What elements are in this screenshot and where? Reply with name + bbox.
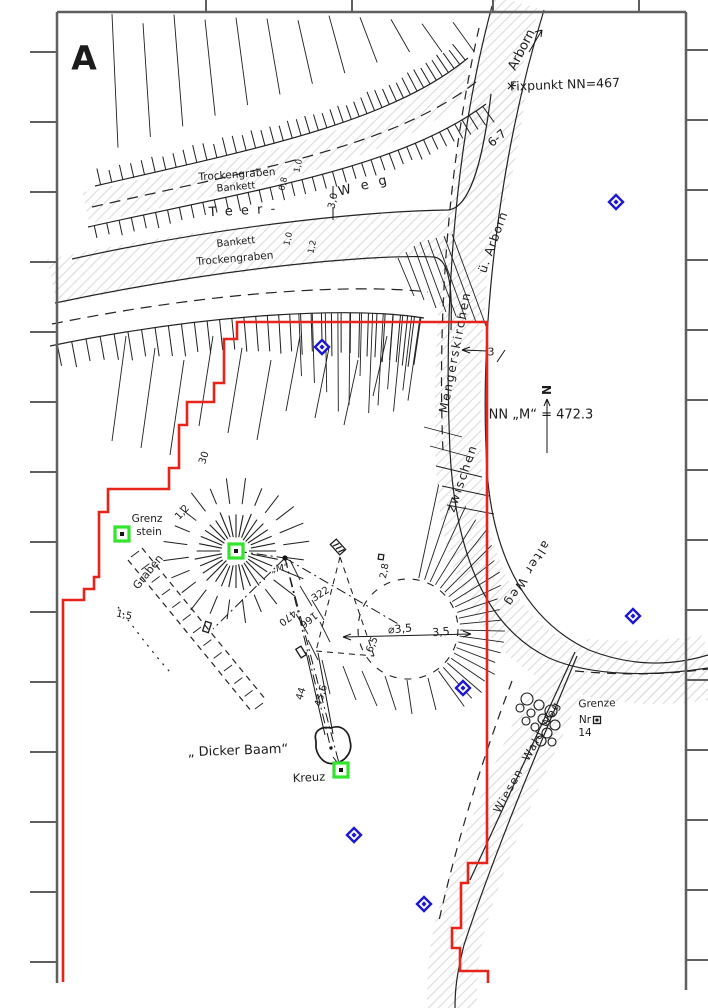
map-page: AArbornFixpunkt NN=4676-7TrockengrabenBa…: [0, 0, 708, 1008]
survey-map-drawing: [0, 0, 708, 1008]
green-square-marker: [229, 544, 243, 558]
blue-diamond-marker: [417, 897, 431, 911]
blue-diamond-marker: [347, 828, 361, 842]
green-square-marker: [115, 527, 129, 541]
survey-point-m: [282, 555, 287, 560]
excavation-boundary: [63, 322, 488, 983]
blue-diamond-marker: [626, 609, 640, 623]
blue-diamond-marker: [315, 340, 329, 354]
survey-markers: [115, 195, 640, 911]
blue-diamond-marker: [609, 195, 623, 209]
road-fork-band: [585, 664, 708, 670]
road-edges: [50, 6, 708, 1008]
road-alter-weg-band: [458, 2, 708, 681]
road-surfaces: [52, 2, 708, 1008]
green-square-marker: [334, 763, 348, 777]
grenze-stone-symbol: [594, 717, 601, 724]
